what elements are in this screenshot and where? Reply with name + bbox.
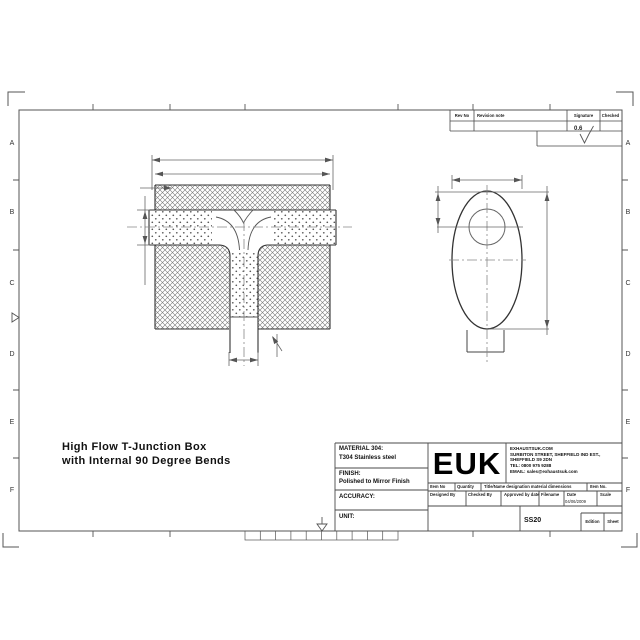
surface-finish-value: 0.6 xyxy=(574,126,582,132)
finish-value: Polished to Mirror Finish xyxy=(339,479,410,485)
zone-letter-right-c: C xyxy=(623,280,633,287)
unit-label: UNIT: xyxy=(339,514,354,520)
zone-letter-right-d: D xyxy=(623,351,633,358)
date-label: Date xyxy=(567,493,576,497)
center-marks xyxy=(12,313,327,531)
side-view xyxy=(435,175,549,363)
material-label: MATERIAL 304: xyxy=(339,446,383,452)
drawing-title-line1: High Flow T-Junction Box xyxy=(62,442,207,453)
item-no-label: Item No xyxy=(430,485,445,489)
designation-label: Title/Name designation material dimensio… xyxy=(484,485,571,489)
accuracy-label: ACCURACY: xyxy=(339,494,375,500)
zone-letter-left-a: A xyxy=(7,140,17,147)
company-logo: EUK xyxy=(428,448,506,479)
designed-by-label: Designed By xyxy=(430,493,455,497)
zone-letter-left-e: E xyxy=(7,419,17,426)
zone-letter-left-d: D xyxy=(7,351,17,358)
filename-label: Filename xyxy=(541,493,559,497)
scale-strip xyxy=(245,531,398,540)
zone-letter-left-f: F xyxy=(7,487,17,494)
sheet-label: Sheet xyxy=(604,520,622,524)
zone-letter-right-e: E xyxy=(623,419,633,426)
item-no2-label: Item No. xyxy=(590,485,607,489)
scale-label: Scale xyxy=(600,493,611,497)
outlet-stub xyxy=(467,330,504,352)
edition-label: Edition xyxy=(581,520,604,524)
approved-label: Approved by date xyxy=(504,493,539,497)
zone-letter-right-f: F xyxy=(623,487,633,494)
zone-letter-left-b: B xyxy=(7,209,17,216)
zone-letter-right-b: B xyxy=(623,209,633,216)
zone-letter-left-c: C xyxy=(7,280,17,287)
engineering-drawing-sheet: A B C D E F A B C D E F Rev No Revision … xyxy=(0,0,640,640)
drawing-title-line2: with Internal 90 Degree Bends xyxy=(62,456,231,467)
zone-letter-right-a: A xyxy=(623,140,633,147)
checked-by-label: Checked By xyxy=(468,493,492,497)
company-address: EXHAUSTSUK.COM SURBITON STREET, SHEFFIEL… xyxy=(510,446,600,475)
quantity-label: Quantity xyxy=(457,485,474,489)
rev-col-signature: Signature xyxy=(567,114,600,118)
finish-label: FINISH: xyxy=(339,471,361,477)
rev-col-rev-no: Rev No xyxy=(451,114,473,118)
rev-col-revision-note: Revision note xyxy=(477,114,504,118)
material-value: T304 Stainless steel xyxy=(339,455,396,461)
rev-col-checked: Checked xyxy=(600,114,621,118)
drawing-number: SS20 xyxy=(524,517,541,524)
drawing-linework xyxy=(0,0,640,640)
main-section-view xyxy=(127,155,352,366)
date-value: 04/06/2009 xyxy=(565,500,586,504)
company-email: EMAIL: sales@exhaustsuk.com xyxy=(510,469,600,475)
outlet-tube xyxy=(229,317,258,353)
